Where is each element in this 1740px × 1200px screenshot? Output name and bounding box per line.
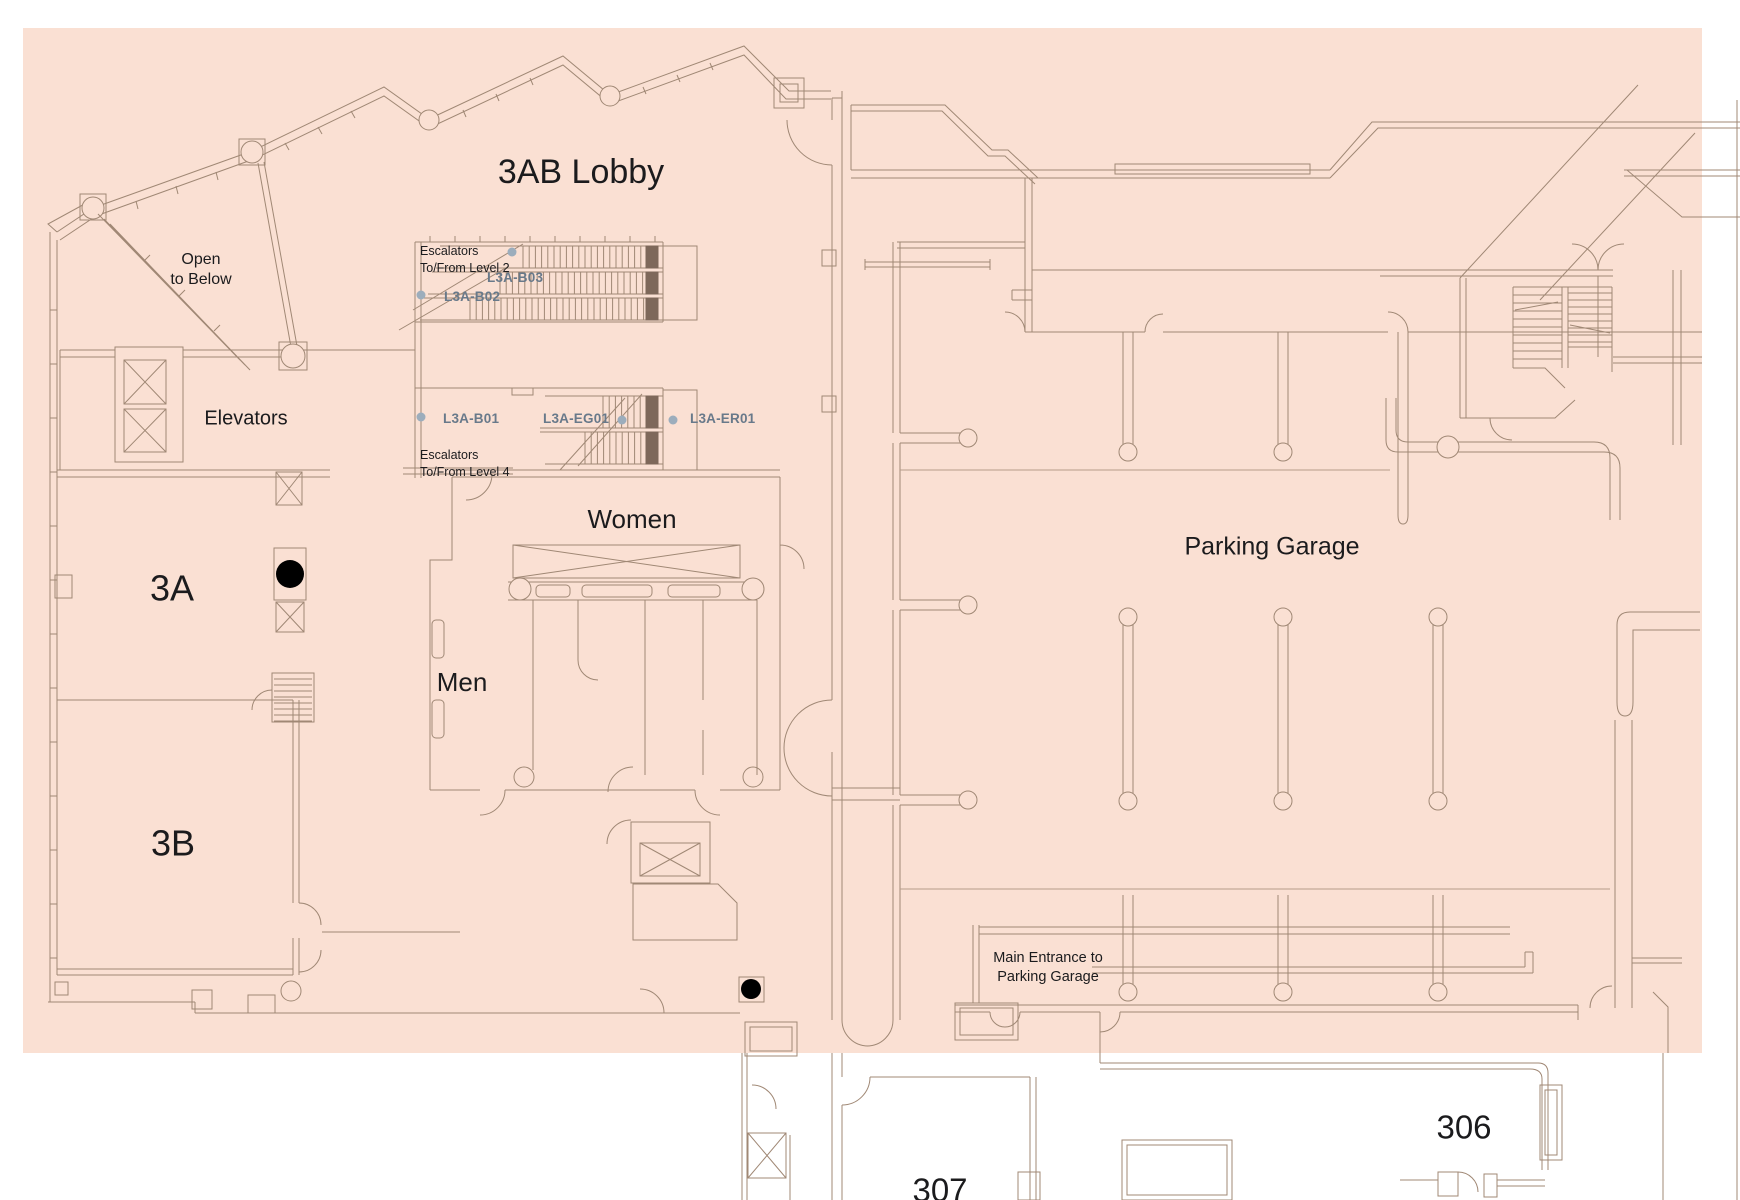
- column: [281, 344, 305, 368]
- room-306-label: 306: [1436, 1106, 1491, 1147]
- open-to-below-label: Opento Below: [170, 250, 231, 290]
- escalators-lower-bank: [403, 388, 697, 500]
- escalators-level4-label: EscalatorsTo/From Level 4: [420, 447, 510, 480]
- parking-garage-label: Parking Garage: [1184, 531, 1359, 562]
- main-entrance-line2: Parking Garage: [997, 969, 1099, 985]
- west-exterior-wall: [48, 232, 740, 1013]
- marker-dot-l3a-b01[interactable]: [417, 413, 426, 422]
- room-3b-label: 3B: [151, 821, 195, 866]
- column: [600, 86, 620, 106]
- floorplan-linework: [0, 0, 1740, 1200]
- main-entrance-line1: Main Entrance to: [993, 950, 1103, 966]
- column: [419, 110, 439, 130]
- marker-dot-l3a-er01[interactable]: [669, 416, 678, 425]
- open-to-below-line1: Open: [181, 251, 220, 268]
- main-entrance-label: Main Entrance toParking Garage: [993, 949, 1103, 987]
- rooms-3a-3b-walls: [57, 470, 460, 975]
- floorplan: 3AB Lobby Opento Below EscalatorsTo/From…: [0, 0, 1740, 1200]
- lobby-area-label: 3AB Lobby: [498, 151, 664, 194]
- elevators-label: Elevators: [204, 407, 287, 432]
- column: [82, 197, 104, 219]
- escalator-label-l3a-b03[interactable]: L3A-B03: [487, 270, 543, 285]
- room-307-label: 307: [912, 1169, 967, 1200]
- escalator-label-l3a-eg01[interactable]: L3A-EG01: [543, 411, 609, 426]
- ramp-and-stairwell: [1386, 85, 1740, 520]
- men-restroom-label: Men: [437, 666, 488, 699]
- escalator-label-l3a-er01[interactable]: L3A-ER01: [690, 411, 755, 426]
- room-3a-label: 3A: [150, 566, 194, 611]
- escalators-level4-line1: Escalators: [420, 448, 478, 462]
- escalator-label-l3a-b02[interactable]: L3A-B02: [444, 289, 500, 304]
- lobby-garage-corridor: [784, 91, 1025, 1200]
- lower-level-rooms: [742, 100, 1737, 1200]
- column: [281, 981, 301, 1001]
- column: [241, 141, 263, 163]
- women-restroom-label: Women: [587, 503, 676, 536]
- main-entrance-canopy: [955, 720, 1682, 1063]
- zigzag-north-wall: [48, 46, 831, 240]
- open-to-below-line2: to Below: [170, 271, 231, 288]
- escalators-level2-line1: Escalators: [420, 244, 478, 258]
- marker-dot-l3a-b03[interactable]: [508, 248, 517, 257]
- marker-dot-l3a-eg01[interactable]: [618, 416, 627, 425]
- marker-dot-l3a-b02[interactable]: [417, 291, 426, 300]
- escalator-label-l3a-b01[interactable]: L3A-B01: [443, 411, 499, 426]
- escalators-level4-line2: To/From Level 4: [420, 465, 510, 479]
